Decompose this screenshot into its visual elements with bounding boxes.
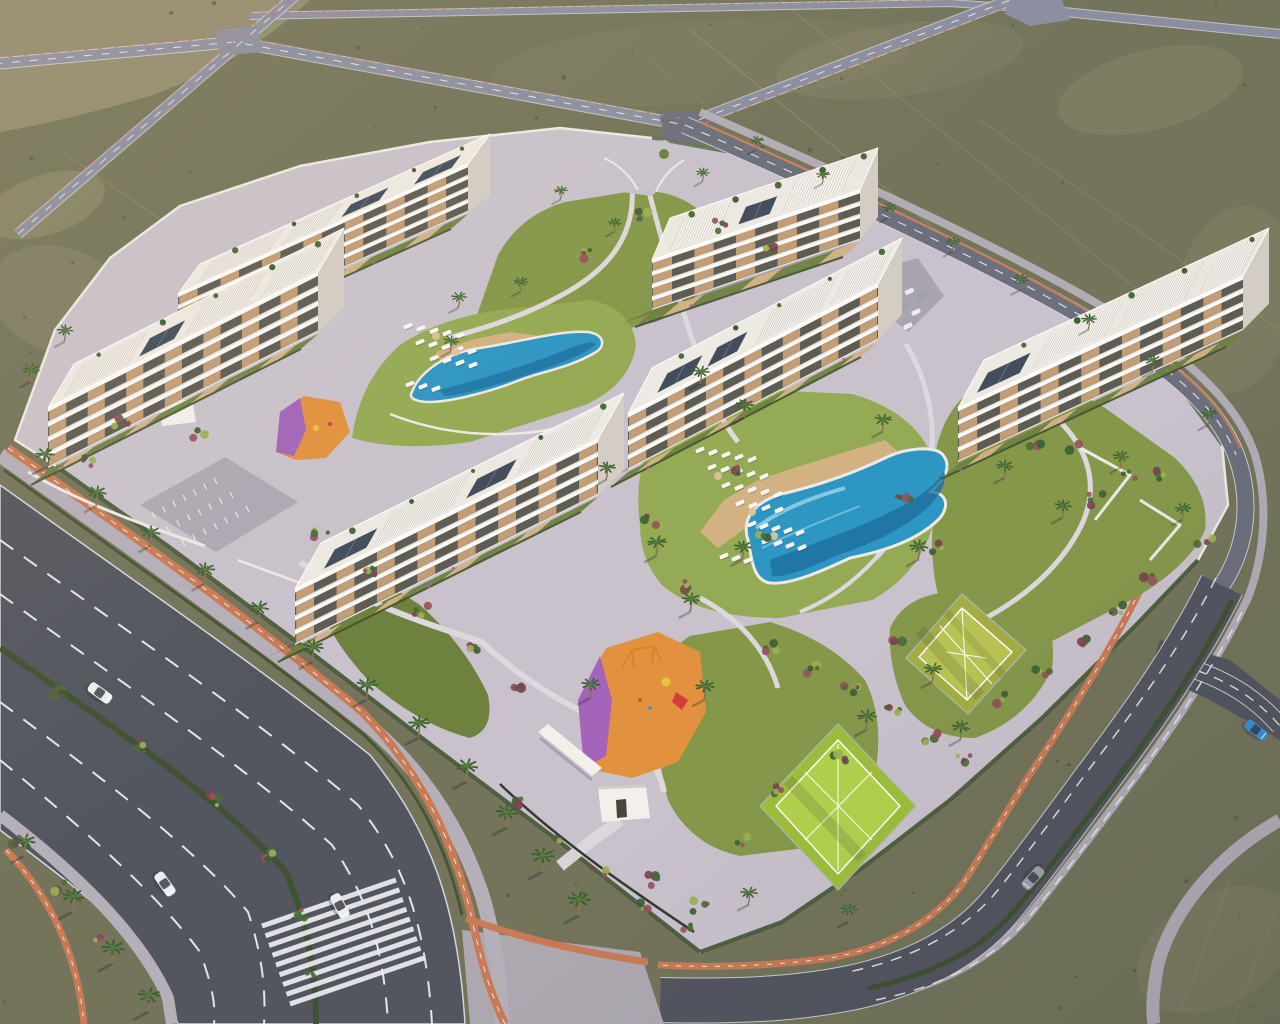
aerial-render-stage: Aerial rendering of a residential apartm…	[0, 0, 1280, 1024]
lighting-overlay	[0, 0, 1280, 1024]
scene-svg: Aerial rendering of a residential apartm…	[0, 0, 1280, 1024]
